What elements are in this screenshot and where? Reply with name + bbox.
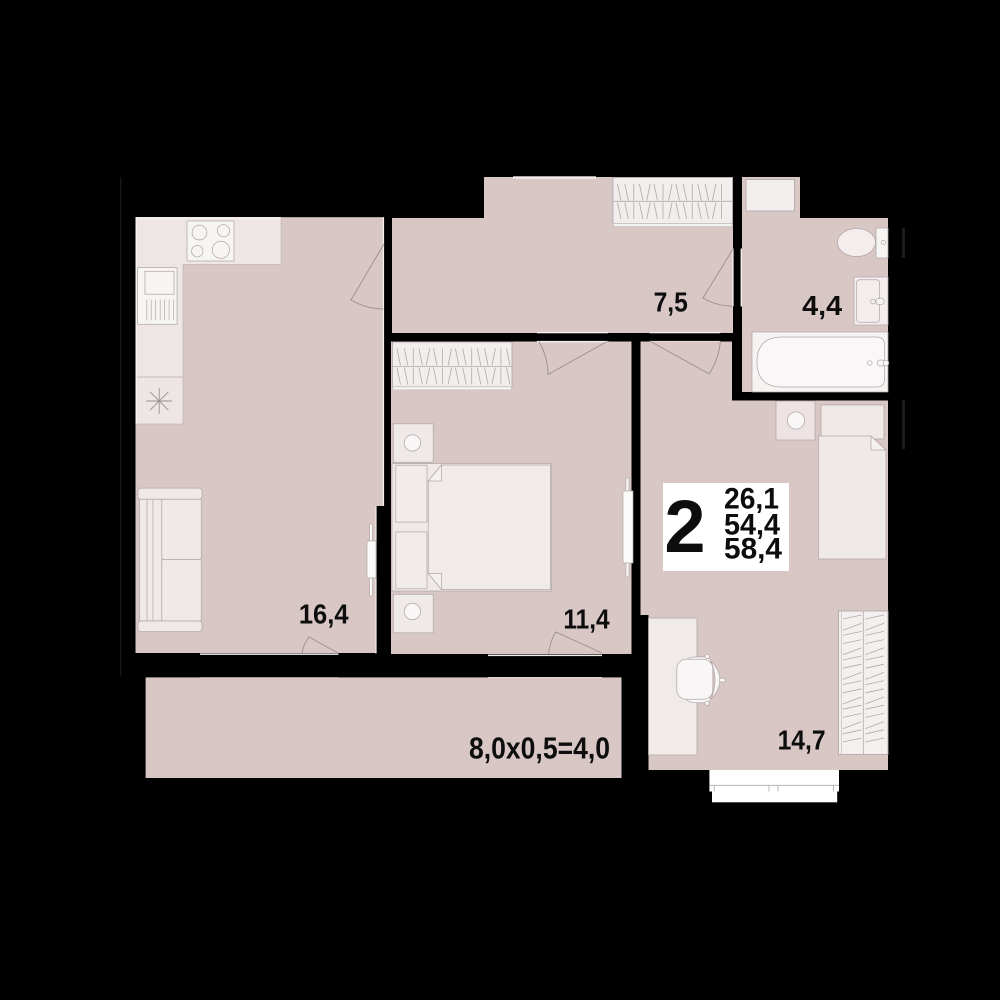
- svg-text:4,4: 4,4: [802, 290, 843, 321]
- svg-text:2: 2: [664, 485, 705, 568]
- svg-text:8,0x0,5=4,0: 8,0x0,5=4,0: [469, 731, 610, 766]
- svg-text:14,7: 14,7: [778, 725, 826, 756]
- svg-text:11,4: 11,4: [563, 604, 610, 635]
- svg-text:16,4: 16,4: [299, 599, 349, 630]
- svg-text:7,5: 7,5: [654, 287, 688, 318]
- svg-text:58,4: 58,4: [724, 533, 782, 566]
